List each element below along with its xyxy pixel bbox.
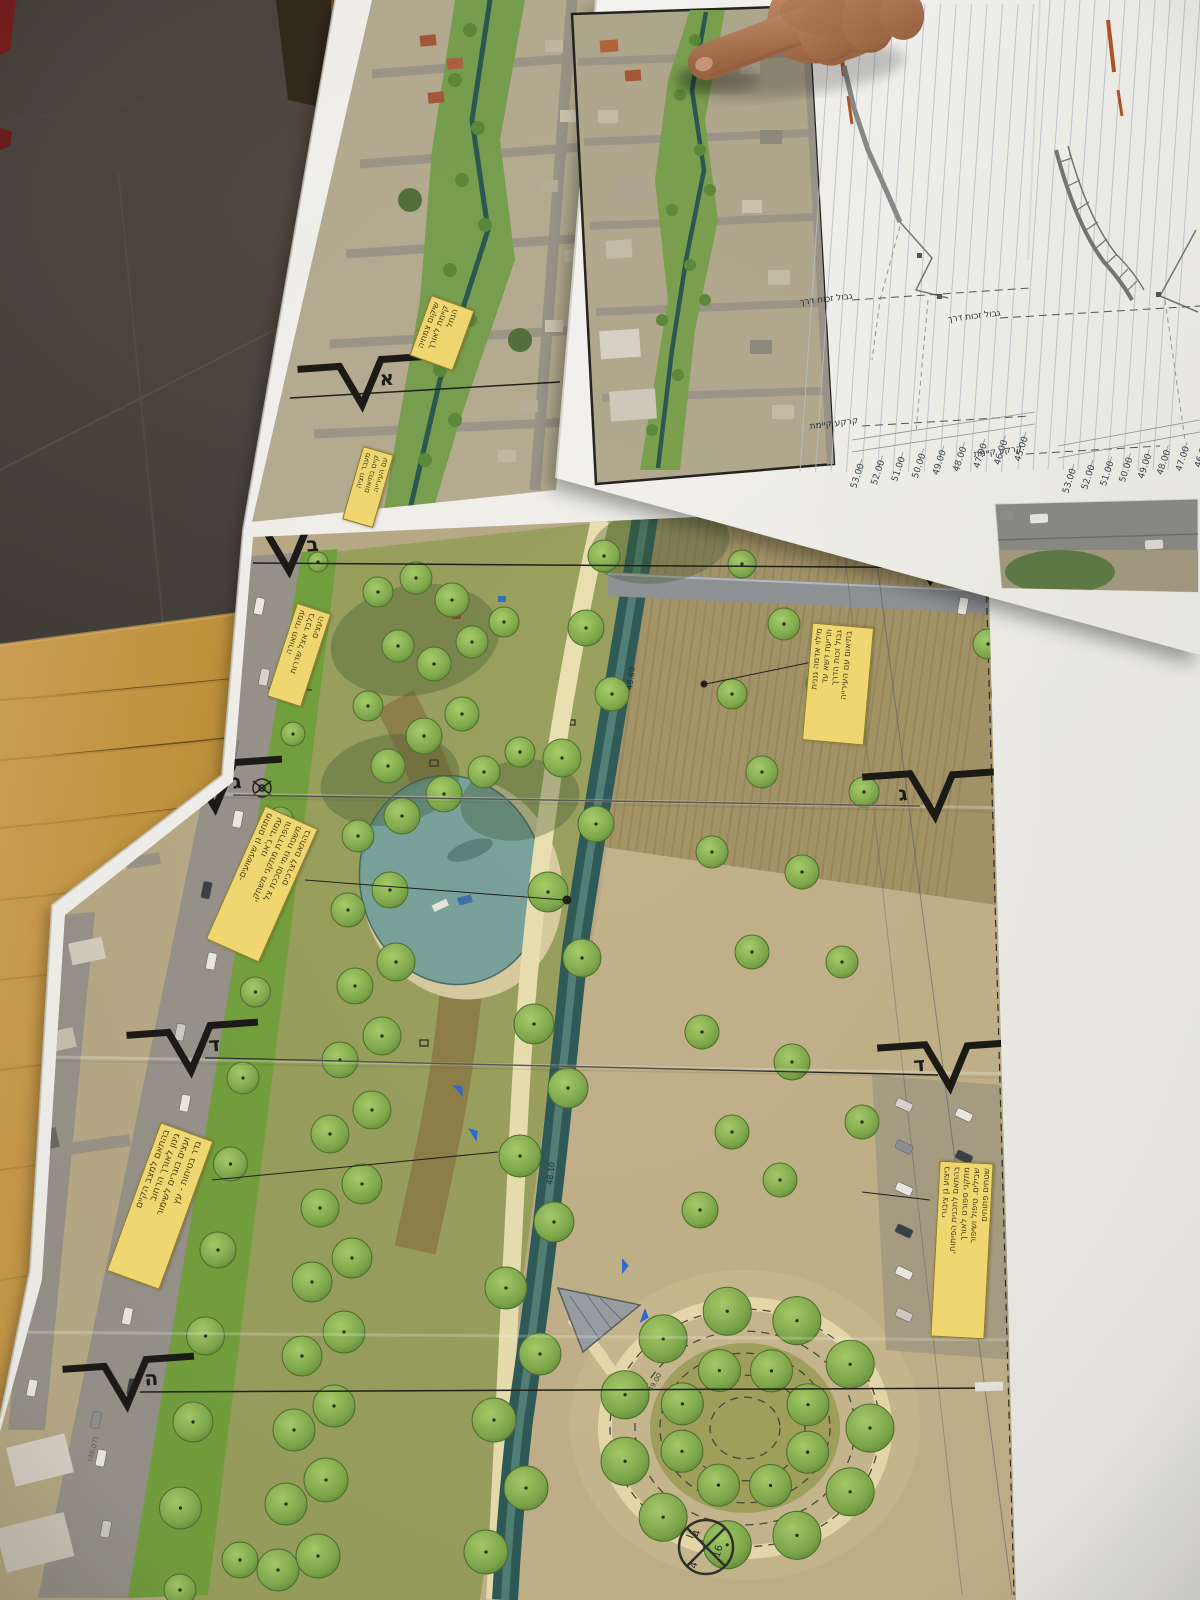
yellow-note-fill: מילוי אדמה גננית וזריעת דשא עד גבול זכות… (802, 623, 874, 746)
yellow-note-public-garden: ביצוע גן ציבורי בהתאם לתכנית הפיתוח, מתק… (930, 1161, 993, 1340)
scene-svg: 4 16 4 48.60 48.10 49.00 (48.25) (48.07) (0, 0, 1200, 1600)
photo-of-plans: 4 16 4 48.60 48.10 49.00 (48.25) (48.07) (0, 0, 1200, 1600)
vignette (0, 0, 1200, 1600)
